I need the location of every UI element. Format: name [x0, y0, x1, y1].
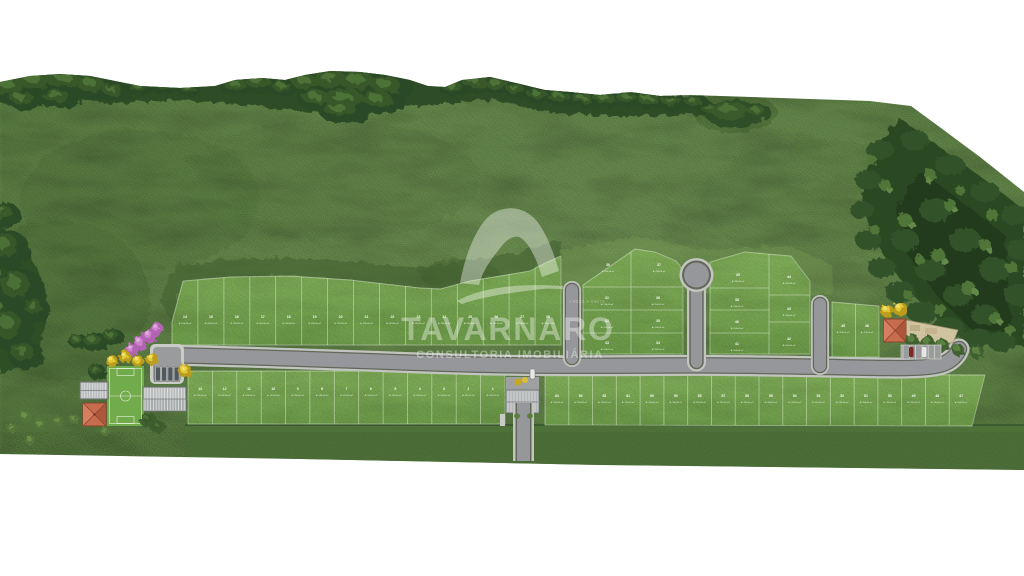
svg-text:34: 34 [656, 341, 660, 345]
svg-text:48: 48 [935, 394, 939, 398]
svg-text:17: 17 [261, 315, 265, 319]
svg-text:9: 9 [297, 387, 299, 391]
svg-text:A: 250,00 m²: A: 250,00 m² [652, 348, 665, 351]
svg-text:A: 250,00 m²: A: 250,00 m² [783, 314, 796, 317]
svg-text:A: 250,00 m²: A: 250,00 m² [622, 401, 635, 404]
svg-text:A: 250,00 m²: A: 250,00 m² [836, 401, 849, 404]
svg-text:2: 2 [467, 387, 469, 391]
svg-text:40: 40 [735, 320, 739, 324]
svg-text:14: 14 [183, 315, 187, 319]
svg-text:53: 53 [816, 394, 820, 398]
svg-text:A: 250,00 m²: A: 250,00 m² [731, 349, 744, 352]
svg-text:55: 55 [769, 394, 773, 398]
svg-text:A: 250,00 m²: A: 250,00 m² [487, 394, 500, 397]
svg-text:A: 250,00 m²: A: 250,00 m² [765, 401, 778, 404]
svg-text:4: 4 [419, 387, 421, 391]
svg-text:TAVARNARO: TAVARNARO [401, 311, 615, 347]
svg-text:A: 250,00 m²: A: 250,00 m² [783, 344, 796, 347]
svg-text:49: 49 [912, 394, 916, 398]
svg-text:31: 31 [605, 296, 609, 300]
svg-text:52: 52 [840, 394, 844, 398]
svg-text:A: 250,00 m²: A: 250,00 m² [652, 326, 665, 329]
svg-text:44: 44 [787, 275, 791, 279]
svg-text:57: 57 [721, 394, 725, 398]
svg-text:A: 250,00 m²: A: 250,00 m² [653, 270, 666, 273]
svg-text:A: 250,00 m²: A: 250,00 m² [205, 322, 218, 325]
svg-text:8: 8 [321, 387, 323, 391]
svg-text:A: 250,00 m²: A: 250,00 m² [884, 401, 897, 404]
svg-text:12: 12 [223, 387, 227, 391]
svg-text:A: 250,00 m²: A: 250,00 m² [646, 401, 659, 404]
svg-text:A: 250,00 m²: A: 250,00 m² [955, 401, 968, 404]
svg-text:18: 18 [287, 315, 291, 319]
svg-text:A: 250,00 m²: A: 250,00 m² [194, 394, 207, 397]
svg-text:A: 250,00 m²: A: 250,00 m² [413, 394, 426, 397]
svg-text:A: 250,00 m²: A: 250,00 m² [731, 305, 744, 308]
svg-text:63: 63 [579, 394, 583, 398]
svg-text:35: 35 [656, 319, 660, 323]
svg-text:A: 250,00 m²: A: 250,00 m² [316, 394, 329, 397]
svg-text:A: 250,00 m²: A: 250,00 m² [717, 401, 730, 404]
svg-text:A: 250,00 m²: A: 250,00 m² [340, 394, 353, 397]
svg-text:7: 7 [346, 387, 348, 391]
svg-text:A: 250,00 m²: A: 250,00 m² [861, 331, 874, 334]
svg-text:56: 56 [745, 394, 749, 398]
svg-text:A: 250,00 m²: A: 250,00 m² [360, 322, 373, 325]
svg-text:42: 42 [787, 337, 791, 341]
svg-text:45: 45 [841, 324, 845, 328]
svg-text:A: 250,00 m²: A: 250,00 m² [931, 401, 944, 404]
svg-text:6: 6 [370, 387, 372, 391]
svg-text:CRECI J-05679: CRECI J-05679 [569, 299, 605, 304]
svg-text:64: 64 [555, 394, 559, 398]
svg-text:21: 21 [365, 315, 369, 319]
svg-text:A: 250,00 m²: A: 250,00 m² [670, 401, 683, 404]
svg-text:A: 250,00 m²: A: 250,00 m² [837, 331, 850, 334]
svg-text:A: 250,00 m²: A: 250,00 m² [907, 401, 920, 404]
svg-text:A: 250,00 m²: A: 250,00 m² [257, 322, 270, 325]
svg-text:30: 30 [606, 263, 610, 267]
svg-text:54: 54 [793, 394, 797, 398]
svg-text:A: 250,00 m²: A: 250,00 m² [267, 394, 280, 397]
svg-text:41: 41 [735, 342, 739, 346]
svg-text:A: 250,00 m²: A: 250,00 m² [783, 282, 796, 285]
svg-text:43: 43 [787, 307, 791, 311]
svg-text:5: 5 [394, 387, 396, 391]
svg-text:A: 250,00 m²: A: 250,00 m² [812, 401, 825, 404]
svg-text:10: 10 [271, 387, 275, 391]
svg-text:50: 50 [888, 394, 892, 398]
svg-text:60: 60 [650, 394, 654, 398]
svg-text:11: 11 [247, 387, 251, 391]
svg-text:A: 250,00 m²: A: 250,00 m² [243, 394, 256, 397]
svg-text:36: 36 [656, 296, 660, 300]
svg-text:A: 250,00 m²: A: 250,00 m² [179, 322, 192, 325]
svg-text:A: 250,00 m²: A: 250,00 m² [462, 394, 475, 397]
svg-text:62: 62 [602, 394, 606, 398]
svg-text:61: 61 [626, 394, 630, 398]
svg-text:A: 250,00 m²: A: 250,00 m² [389, 394, 402, 397]
svg-text:CONSULTORIA IMOBILIÁRIA: CONSULTORIA IMOBILIÁRIA [416, 348, 604, 361]
svg-text:47: 47 [959, 394, 963, 398]
svg-text:A: 250,00 m²: A: 250,00 m² [788, 401, 801, 404]
svg-text:38: 38 [735, 298, 739, 302]
svg-text:1: 1 [492, 387, 494, 391]
svg-text:A: 250,00 m²: A: 250,00 m² [386, 322, 399, 325]
svg-text:A: 250,00 m²: A: 250,00 m² [741, 401, 754, 404]
svg-text:59: 59 [674, 394, 678, 398]
svg-text:A: 250,00 m²: A: 250,00 m² [438, 394, 451, 397]
svg-text:A: 250,00 m²: A: 250,00 m² [602, 270, 615, 273]
svg-text:A: 250,00 m²: A: 250,00 m² [291, 394, 304, 397]
svg-text:A: 250,00 m²: A: 250,00 m² [860, 401, 873, 404]
svg-text:A: 250,00 m²: A: 250,00 m² [731, 327, 744, 330]
svg-text:A: 250,00 m²: A: 250,00 m² [652, 303, 665, 306]
svg-text:58: 58 [698, 394, 702, 398]
svg-text:A: 250,00 m²: A: 250,00 m² [732, 280, 745, 283]
svg-text:A: 250,00 m²: A: 250,00 m² [365, 394, 378, 397]
svg-text:A: 250,00 m²: A: 250,00 m² [551, 401, 564, 404]
svg-text:A: 250,00 m²: A: 250,00 m² [282, 322, 295, 325]
svg-text:15: 15 [209, 315, 213, 319]
svg-text:16: 16 [235, 315, 239, 319]
svg-text:A: 250,00 m²: A: 250,00 m² [574, 401, 587, 404]
svg-text:37: 37 [657, 263, 661, 267]
svg-text:46: 46 [865, 324, 869, 328]
svg-text:13: 13 [198, 387, 202, 391]
svg-text:A: 250,00 m²: A: 250,00 m² [218, 394, 231, 397]
svg-text:22: 22 [390, 315, 394, 319]
svg-text:A: 250,00 m²: A: 250,00 m² [231, 322, 244, 325]
svg-text:39: 39 [736, 273, 740, 277]
svg-text:51: 51 [864, 394, 868, 398]
svg-text:20: 20 [339, 315, 343, 319]
svg-text:3: 3 [443, 387, 445, 391]
svg-text:A: 250,00 m²: A: 250,00 m² [598, 401, 611, 404]
svg-text:A: 250,00 m²: A: 250,00 m² [334, 322, 347, 325]
svg-text:19: 19 [313, 315, 317, 319]
svg-text:A: 250,00 m²: A: 250,00 m² [693, 401, 706, 404]
svg-text:A: 250,00 m²: A: 250,00 m² [308, 322, 321, 325]
